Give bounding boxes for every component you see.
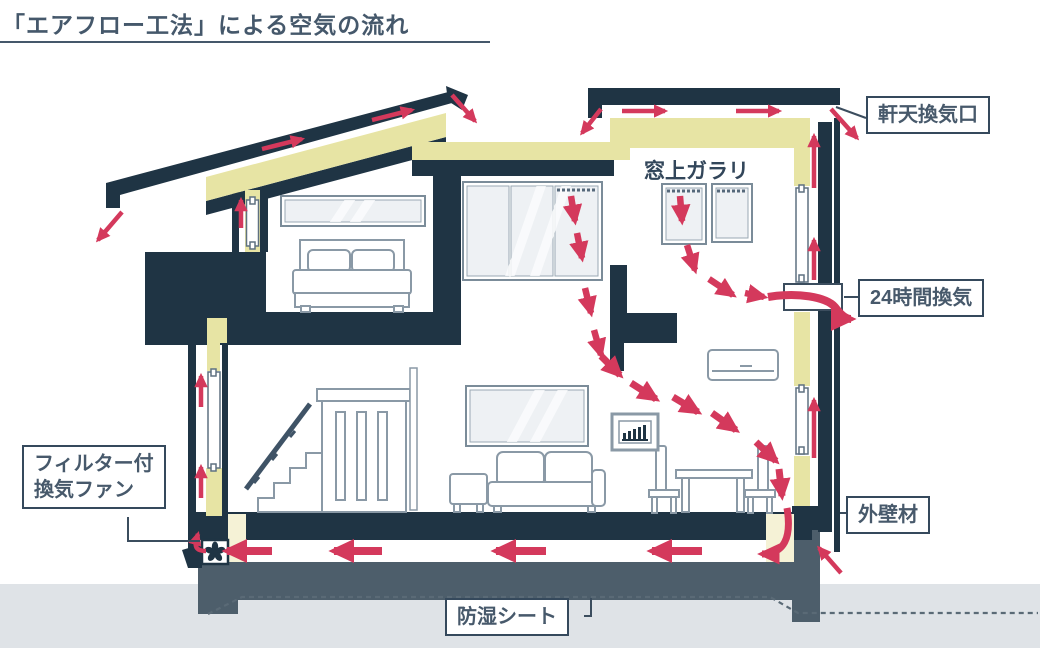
page-title: 「エアフロー工法」による空気の流れ — [2, 6, 409, 40]
callout-moisture-sheet: 防湿シート — [445, 598, 569, 636]
bed — [293, 240, 411, 312]
label-window-louver: 窓上ガラリ — [644, 155, 749, 185]
callout-filter-fan: フィルター付 換気ファン — [22, 445, 166, 509]
callout-filter-fan-line2: 換気ファン — [34, 479, 134, 501]
callout-filter-fan-line1: フィルター付 — [34, 453, 154, 475]
door-frame — [410, 368, 417, 510]
callout-24h-ventilation: 24時間換気 — [858, 279, 984, 317]
callout-eave-vent: 軒天換気口 — [866, 96, 990, 134]
airflow-diagram: 「エアフロー工法」による空気の流れ 軒天換気口 窓上ガラリ 24時間換気 外壁材… — [0, 0, 1040, 648]
air-conditioner — [708, 350, 778, 380]
callout-exterior-wall: 外壁材 — [846, 496, 930, 534]
staircase — [246, 389, 410, 512]
sofa — [450, 452, 605, 512]
title-underline — [0, 41, 490, 43]
wall-picture — [612, 414, 658, 450]
dining-set — [649, 446, 775, 513]
